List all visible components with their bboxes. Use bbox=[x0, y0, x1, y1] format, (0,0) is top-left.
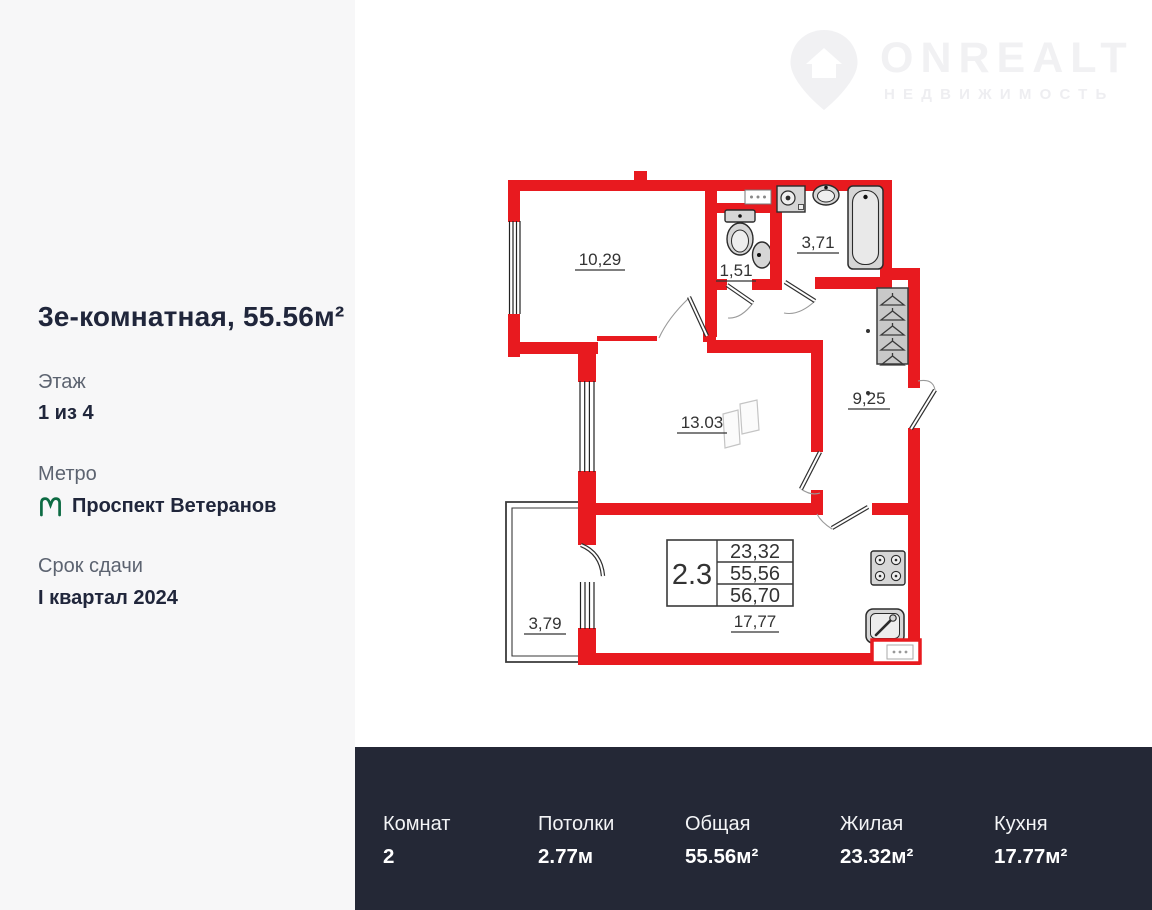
bathroom-area-label: 3,71 bbox=[801, 233, 834, 252]
radiator-icon bbox=[872, 640, 920, 663]
stats-bar: Комнат 2 Потолки 2.77м Общая 55.56м² Жил… bbox=[355, 747, 1152, 910]
kitchen-sink-icon bbox=[866, 609, 904, 643]
bathroom-sink-icon bbox=[813, 185, 839, 205]
listing-page: 3е-комнатная, 55.56м² Этаж 1 из 4 Метро … bbox=[0, 0, 1152, 910]
stat-rooms: Комнат 2 bbox=[383, 813, 538, 910]
wardrobe-icon bbox=[866, 288, 908, 395]
room1-area-label: 10,29 bbox=[579, 250, 622, 269]
spec-row-living: 23,32 bbox=[730, 541, 780, 563]
stat-label: Жилая bbox=[840, 813, 994, 836]
bathtub-icon bbox=[848, 186, 883, 269]
deadline-label: Срок сдачи bbox=[38, 555, 143, 578]
spec-row-full: 56,70 bbox=[730, 585, 780, 607]
stat-ceiling: Потолки 2.77м bbox=[538, 813, 685, 910]
stat-label: Кухня bbox=[994, 813, 1067, 836]
sidebar: 3е-комнатная, 55.56м² Этаж 1 из 4 Метро … bbox=[0, 0, 355, 910]
stat-label: Комнат bbox=[383, 813, 538, 836]
stat-value: 23.32м² bbox=[840, 845, 994, 869]
metro-label: Метро bbox=[38, 463, 97, 486]
window-room1 bbox=[510, 221, 521, 314]
metro-icon bbox=[38, 494, 63, 519]
location-pin-icon bbox=[786, 28, 862, 117]
toilet-icon bbox=[725, 210, 755, 255]
window-kitchen bbox=[581, 582, 595, 629]
metro-station-row: Проспект Ветеранов bbox=[38, 494, 276, 519]
spec-row-total: 55,56 bbox=[730, 563, 780, 585]
stat-value: 55.56м² bbox=[685, 845, 840, 869]
hallway-area-label: 9,25 bbox=[852, 389, 885, 408]
wc-sink-icon bbox=[753, 242, 772, 268]
logo-subtitle-text: НЕДВИЖИМОСТЬ bbox=[884, 86, 1114, 103]
stat-value: 17.77м² bbox=[994, 845, 1067, 869]
stat-living-area: Жилая 23.32м² bbox=[840, 813, 994, 910]
balcony-outline bbox=[506, 502, 580, 662]
stat-label: Потолки bbox=[538, 813, 685, 836]
apartment-type-label: 2.3 bbox=[672, 559, 712, 591]
stove-icon bbox=[871, 551, 905, 585]
washing-machine-icon bbox=[777, 186, 805, 212]
deadline-value: I квартал 2024 bbox=[38, 587, 178, 610]
floor-plan: 10,29 1,51 3,71 13.03 9,25 3,79 17,77 2.… bbox=[496, 170, 941, 675]
room2-area-label: 13.03 bbox=[681, 413, 724, 432]
floor-label: Этаж bbox=[38, 371, 86, 394]
spec-table: 2.3 23,32 55,56 56,70 bbox=[667, 540, 793, 607]
metro-station-name: Проспект Ветеранов bbox=[72, 495, 276, 518]
onrealt-logo: ONREALT НЕДВИЖИМОСТЬ bbox=[786, 26, 1126, 110]
balcony-area-label: 3,79 bbox=[528, 614, 561, 633]
logo-brand-text: ONREALT bbox=[880, 34, 1134, 83]
page-title: 3е-комнатная, 55.56м² bbox=[38, 301, 344, 333]
stat-label: Общая bbox=[685, 813, 840, 836]
electrical-panel-icon bbox=[745, 190, 771, 204]
stat-kitchen-area: Кухня 17.77м² bbox=[994, 813, 1067, 910]
kitchen-area-label: 17,77 bbox=[734, 612, 777, 631]
wc-area-label: 1,51 bbox=[719, 261, 752, 280]
stat-total-area: Общая 55.56м² bbox=[685, 813, 840, 910]
furniture-sketch bbox=[723, 400, 759, 448]
stat-value: 2.77м bbox=[538, 845, 685, 869]
floor-value: 1 из 4 bbox=[38, 402, 94, 425]
stat-value: 2 bbox=[383, 845, 538, 869]
window-room2 bbox=[580, 381, 594, 472]
